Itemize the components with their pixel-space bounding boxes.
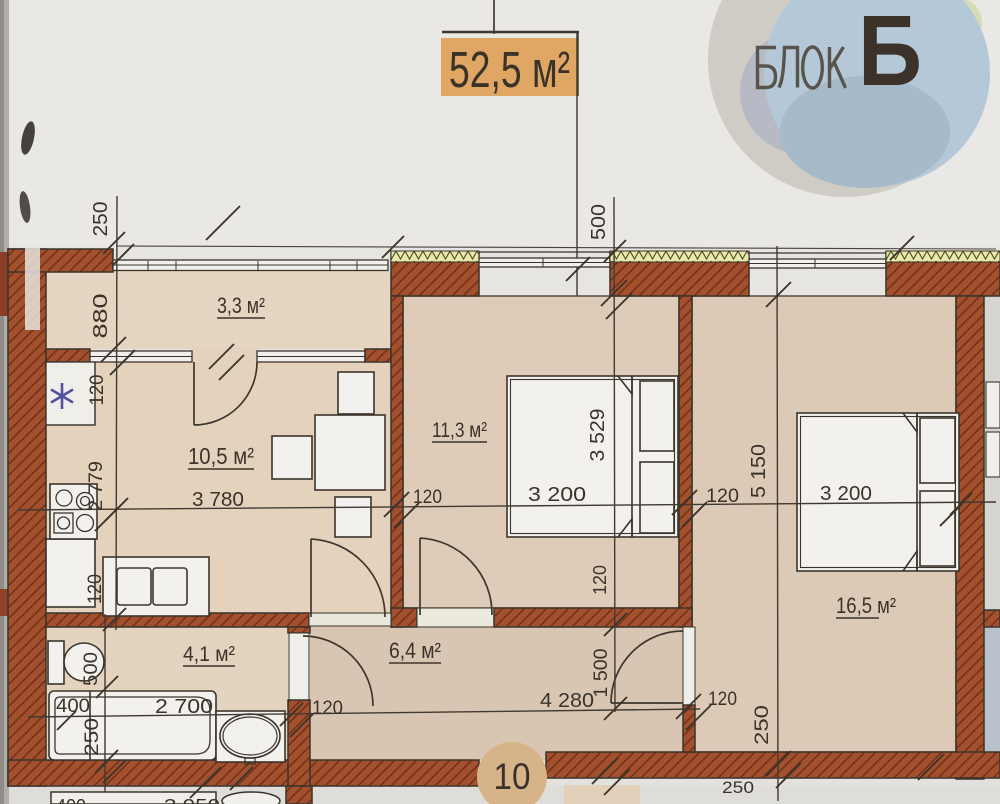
svg-text:250: 250 bbox=[752, 705, 773, 745]
svg-text:10: 10 bbox=[494, 756, 531, 797]
svg-text:250: 250 bbox=[82, 718, 103, 756]
svg-text:Б: Б bbox=[858, 0, 922, 107]
svg-text:120: 120 bbox=[85, 574, 106, 604]
svg-text:880: 880 bbox=[90, 294, 112, 339]
svg-text:250: 250 bbox=[722, 778, 754, 797]
svg-text:16,5 м²: 16,5 м² bbox=[836, 593, 896, 618]
svg-text:11,3 м²: 11,3 м² bbox=[432, 419, 487, 442]
svg-text:400: 400 bbox=[56, 696, 90, 717]
svg-text:6,4 м²: 6,4 м² bbox=[389, 638, 441, 663]
svg-text:4 280: 4 280 bbox=[540, 690, 594, 712]
svg-text:5 150: 5 150 bbox=[748, 444, 770, 498]
svg-text:3 529: 3 529 bbox=[587, 409, 609, 462]
svg-text:120: 120 bbox=[706, 486, 739, 507]
svg-text:52,5 м²: 52,5 м² bbox=[449, 41, 570, 98]
svg-text:3 200: 3 200 bbox=[820, 483, 872, 505]
svg-text:400: 400 bbox=[56, 796, 86, 804]
svg-text:3 200: 3 200 bbox=[528, 484, 586, 506]
svg-text:2 700: 2 700 bbox=[155, 696, 213, 718]
svg-text:3 780: 3 780 bbox=[192, 489, 244, 511]
svg-text:10,5 м²: 10,5 м² bbox=[188, 443, 254, 469]
svg-text:120: 120 bbox=[312, 698, 343, 719]
svg-text:1 500: 1 500 bbox=[591, 649, 612, 698]
svg-text:120: 120 bbox=[590, 565, 610, 595]
svg-text:2 779: 2 779 bbox=[86, 461, 107, 511]
svg-text:500: 500 bbox=[588, 204, 610, 240]
svg-text:4,1 м²: 4,1 м² bbox=[183, 643, 235, 666]
svg-text:250: 250 bbox=[90, 202, 112, 237]
svg-text:120: 120 bbox=[87, 375, 108, 406]
svg-text:500: 500 bbox=[81, 652, 102, 686]
svg-text:120: 120 bbox=[413, 487, 442, 508]
svg-text:3,3 м²: 3,3 м² bbox=[217, 293, 265, 318]
svg-text:3 050: 3 050 bbox=[164, 796, 220, 804]
svg-text:120: 120 bbox=[708, 689, 737, 710]
